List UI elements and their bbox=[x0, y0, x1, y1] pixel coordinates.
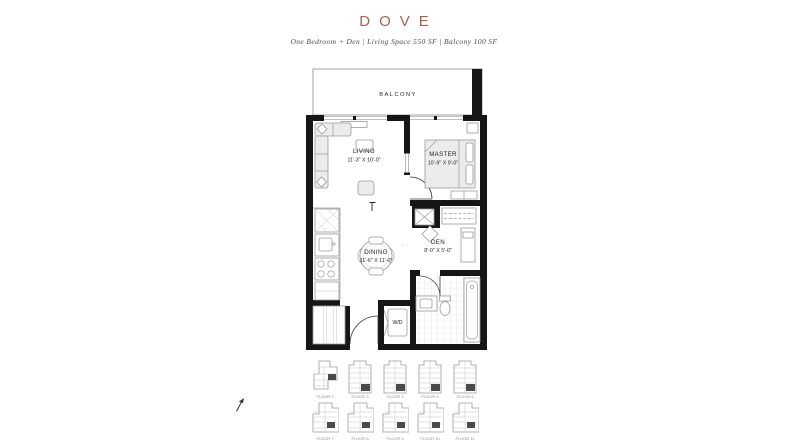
hall-closet bbox=[442, 208, 476, 224]
floorplan-drawing: BALCONY bbox=[303, 58, 487, 350]
header: DOVE One Bedroom + Den | Living Space 55… bbox=[0, 13, 788, 46]
pantry-closet bbox=[313, 306, 345, 344]
keyplan: FLOOR 8 bbox=[346, 402, 374, 441]
entry-door bbox=[350, 316, 378, 344]
keyplan-caption: FLOOR 4 bbox=[386, 395, 403, 399]
keyplans: FLOOR 2 FLOOR 3 FLOOR 4 bbox=[311, 360, 479, 441]
keyplan: FLOOR 4 bbox=[381, 360, 409, 399]
living-room: LIVING 11'-3" X 10'-0" bbox=[315, 122, 381, 196]
floorplan-page: DOVE One Bedroom + Den | Living Space 55… bbox=[0, 0, 788, 444]
dining-area: DINING 11'-6" X 11'-0" bbox=[358, 237, 394, 275]
keyplan-drawing bbox=[346, 402, 374, 436]
den-label: DEN bbox=[431, 239, 445, 246]
keyplan-caption: FLOOR 5 bbox=[421, 395, 438, 399]
keyplan-caption: FLOOR 11 bbox=[455, 437, 474, 441]
balcony: BALCONY bbox=[313, 69, 482, 115]
master-label: MASTER bbox=[429, 151, 457, 158]
keyplan: FLOOR 2 bbox=[311, 360, 339, 399]
kitchen bbox=[313, 208, 340, 300]
north-arrow-icon bbox=[233, 396, 247, 414]
bathroom bbox=[416, 276, 480, 344]
keyplan-caption: FLOOR 8 bbox=[351, 437, 368, 441]
living-label: LIVING bbox=[353, 148, 375, 155]
toilet bbox=[440, 296, 451, 301]
keyplan-drawing bbox=[346, 360, 374, 394]
keyplan-caption: FLOOR 7 bbox=[316, 437, 333, 441]
keyplan-caption: FLOOR 2 bbox=[316, 395, 333, 399]
keyplan-row: FLOOR 7 FLOOR 8 FLOOR 9 bbox=[311, 402, 479, 441]
master-bedroom: MASTER 10'-9" X 9'-0" bbox=[425, 123, 478, 199]
master-dims: 10'-9" X 9'-0" bbox=[428, 161, 459, 167]
keyplan-drawing bbox=[311, 360, 339, 394]
dining-table bbox=[360, 240, 392, 272]
dining-chair bbox=[369, 237, 383, 244]
keyplan: FLOOR 10 bbox=[416, 402, 444, 441]
stove bbox=[315, 258, 339, 280]
keyplan-row: FLOOR 2 FLOOR 3 FLOOR 4 bbox=[311, 360, 479, 399]
den: DEN 8'-0" X 5'-0" bbox=[422, 226, 475, 262]
dining-dims: 11'-6" X 11'-0" bbox=[360, 258, 393, 264]
keyplan: FLOOR 9 bbox=[381, 402, 409, 441]
nightstand bbox=[467, 123, 478, 133]
living-dims: 11'-3" X 10'-0" bbox=[347, 158, 380, 164]
keyplan: FLOOR 6 bbox=[451, 360, 479, 399]
keyplan-caption: FLOOR 10 bbox=[420, 437, 439, 441]
keyplan: FLOOR 3 bbox=[346, 360, 374, 399]
pillow bbox=[466, 143, 473, 162]
shaft bbox=[412, 206, 440, 228]
keyplan-drawing bbox=[381, 402, 409, 436]
keyplan-drawing bbox=[381, 360, 409, 394]
keyplan-drawing bbox=[451, 402, 479, 436]
keyplan: FLOOR 5 bbox=[416, 360, 444, 399]
keyplan: FLOOR 7 bbox=[311, 402, 339, 441]
armchair bbox=[358, 181, 374, 195]
laundry-closet: W/D bbox=[384, 309, 407, 336]
plan-subtitle: One Bedroom + Den | Living Space 550 SF … bbox=[0, 37, 788, 46]
keyplan-drawing bbox=[311, 402, 339, 436]
keyplan-drawing bbox=[451, 360, 479, 394]
keyplan: FLOOR 11 bbox=[451, 402, 479, 441]
keyplan-caption: FLOOR 6 bbox=[456, 395, 473, 399]
keyplan-drawing bbox=[416, 402, 444, 436]
den-dims: 8'-0" X 5'-0" bbox=[424, 248, 452, 254]
keyplan-caption: FLOOR 9 bbox=[386, 437, 403, 441]
keyplan-drawing bbox=[416, 360, 444, 394]
dining-label: DINING bbox=[364, 249, 387, 256]
keyplan-caption: FLOOR 3 bbox=[351, 395, 368, 399]
laundry-label: W/D bbox=[392, 320, 402, 326]
plan-title: DOVE bbox=[0, 13, 788, 30]
balcony-label: BALCONY bbox=[379, 92, 417, 98]
